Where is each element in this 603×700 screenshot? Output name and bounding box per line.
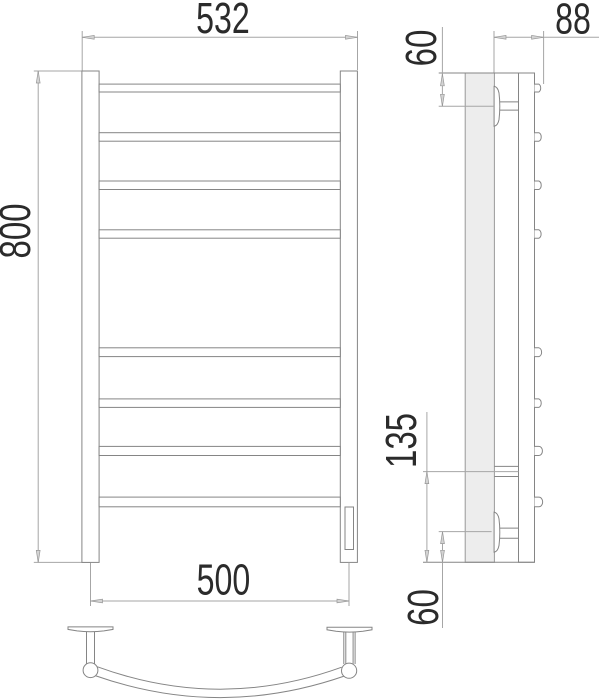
svg-text:60: 60 bbox=[398, 30, 447, 67]
svg-text:532: 532 bbox=[196, 0, 250, 43]
svg-text:800: 800 bbox=[0, 203, 40, 258]
svg-text:135: 135 bbox=[378, 413, 427, 468]
svg-text:60: 60 bbox=[400, 589, 449, 626]
svg-text:500: 500 bbox=[197, 556, 251, 605]
svg-text:88: 88 bbox=[555, 0, 591, 44]
